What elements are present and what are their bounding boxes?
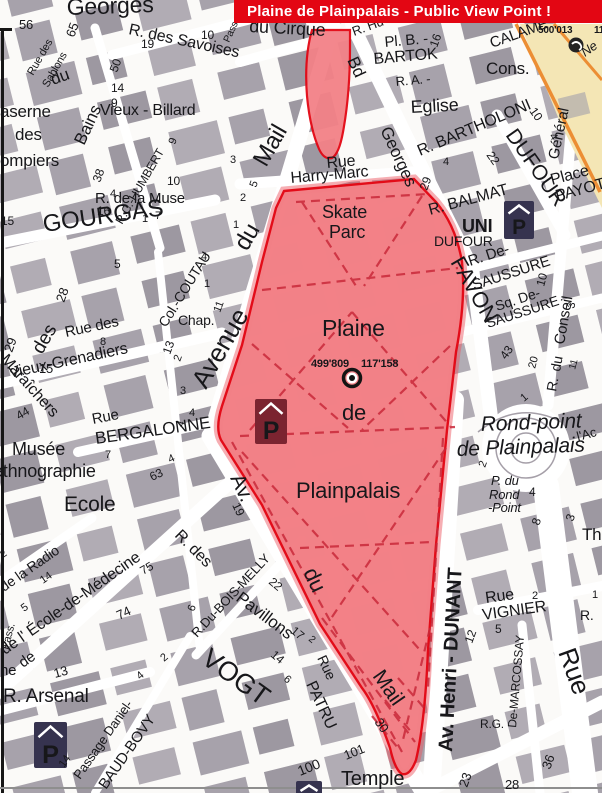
map-label: de Plainpalais <box>456 434 585 461</box>
map-label: R. Arsenal <box>3 686 89 707</box>
map-label: Parc <box>329 222 365 242</box>
map-label: ne <box>0 662 16 679</box>
map-label: du <box>547 355 565 373</box>
map-label: P. du <box>491 473 519 488</box>
map-canvas[interactable]: PPPP Georges56Rue desSablons651950R. des… <box>0 0 602 793</box>
map-label: R. <box>580 607 594 623</box>
map-label: 8 <box>100 336 106 348</box>
map-label: Ecole <box>64 493 116 516</box>
map-label: ompiers <box>0 151 59 170</box>
map-label: R. A. - <box>395 71 431 89</box>
map-label: 499'809 <box>311 358 349 370</box>
parking-icon: P <box>504 201 534 239</box>
frame-tick <box>0 28 12 31</box>
map-label: -Point <box>488 500 522 515</box>
map-label: Eglise <box>410 95 459 117</box>
map-label: Th <box>582 525 601 544</box>
map-label: 2 <box>532 590 538 602</box>
map-label: Chap. <box>178 312 214 328</box>
map-label: Temple <box>341 768 404 790</box>
map-label: Vieux - Billard <box>100 102 195 119</box>
map-label: 56 <box>19 17 33 32</box>
map-label: 5 <box>114 257 121 271</box>
map-label: Georges <box>66 0 154 20</box>
map-label: des <box>15 125 42 144</box>
map-label: 4 <box>443 156 449 168</box>
map-label: 15 <box>39 361 53 376</box>
map-label: 10 <box>167 174 180 188</box>
map-label: 1 <box>142 213 148 225</box>
map-label: 1 <box>204 278 210 290</box>
parking-letter: P <box>263 418 279 445</box>
map-label: Rond-point <box>480 409 583 436</box>
map-label: Plaine <box>322 315 385 341</box>
map-label: 3 <box>230 154 236 166</box>
map-label: 4 <box>201 251 207 263</box>
parking-letter: P <box>42 741 59 769</box>
parking-icon: P <box>296 781 322 793</box>
map-label: 15 <box>1 214 14 228</box>
map-label: 10 <box>201 28 214 42</box>
map-label: R. <box>543 376 561 392</box>
title-text: Plaine de Plainpalais - Public View Poin… <box>247 3 551 20</box>
map-label: de <box>342 400 366 425</box>
parking-letter: P <box>512 216 526 239</box>
map-page: PPPP Georges56Rue desSablons651950R. des… <box>0 0 602 793</box>
marker-dot <box>349 375 355 381</box>
map-label: 5 <box>495 622 502 636</box>
map-label: 11 <box>594 25 602 36</box>
map-label: Plainpalais <box>296 478 400 503</box>
map-label: 2 <box>240 192 246 204</box>
map-label: 7 <box>105 449 111 461</box>
map-label: 117'158 <box>361 358 398 370</box>
map-label: ethnographie <box>0 461 96 481</box>
map-label: 4 <box>529 485 536 499</box>
map-label: 1 <box>592 589 598 601</box>
map-label: R.G. <box>480 717 504 731</box>
parking-icon: P <box>255 399 287 445</box>
map-label: 500'013 <box>538 25 573 36</box>
map-label: 14 <box>111 81 124 95</box>
map-label: 7 <box>155 210 161 222</box>
map-label: DUFOUR <box>434 233 493 249</box>
map-label: 3 <box>180 385 186 397</box>
map-label: aserne <box>0 102 51 121</box>
map-label: Cons. <box>486 59 529 78</box>
map-label: 28 <box>505 777 519 792</box>
map-label: Musée <box>12 439 65 459</box>
title-bar: Plaine de Plainpalais - Public View Poin… <box>234 0 602 23</box>
map-label: Skate <box>322 202 367 222</box>
